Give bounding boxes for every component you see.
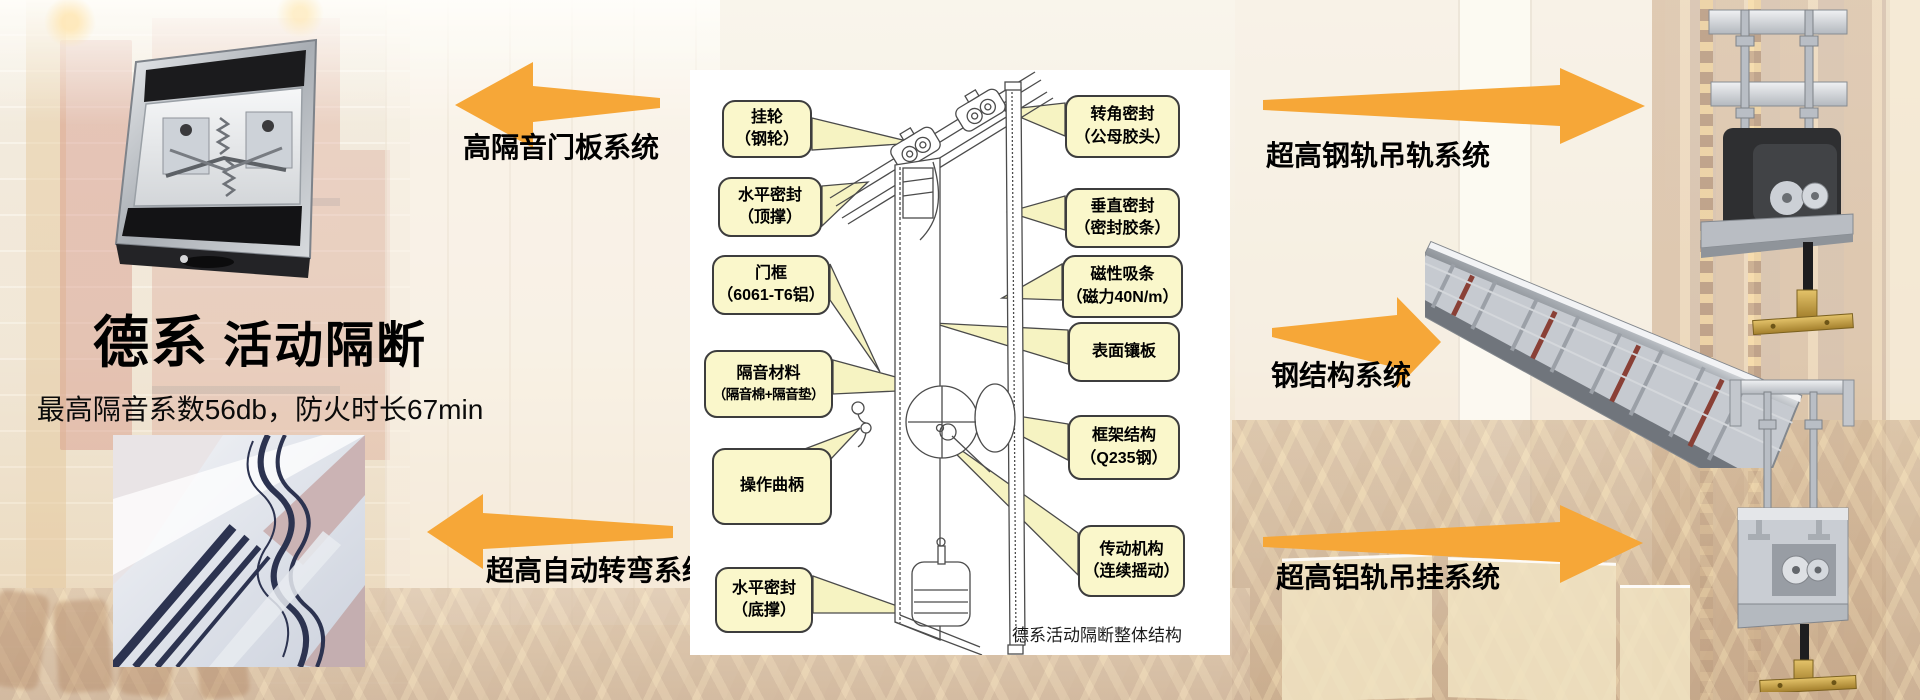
callout-horizontal-seal-top: 水平密封 （顶撑）	[718, 177, 822, 237]
callout-operating-crank: 操作曲柄	[712, 448, 832, 525]
callout-door-frame: 门框 （6061-T6铝）	[712, 255, 830, 315]
curved-track-photo	[113, 435, 365, 667]
callout-horizontal-seal-bottom: 水平密封 （底撑）	[715, 567, 813, 633]
hero-title-strong: 德系	[93, 298, 209, 379]
callout-drive-mechanism: 传动机构 （连续摇动）	[1078, 525, 1185, 597]
callout-frame-structure: 框架结构 （Q235钢）	[1068, 415, 1180, 480]
partition-illustration	[830, 72, 1053, 655]
callout-hanging-wheel: 挂轮 （钢轮）	[722, 100, 812, 158]
label-alu-rail-system: 超高铝轨吊挂系统	[1276, 556, 1500, 596]
door-panel-cross-section-photo	[88, 0, 398, 285]
callout-magnetic-strip: 磁性吸条 （磁力40N/m）	[1062, 255, 1183, 318]
callout-sound-insulation: 隔音材料 （隔音棉+隔音垫）	[704, 350, 833, 418]
steel-rail-hanger-photo	[1695, 2, 1865, 337]
hero-title-rest: 活动隔断	[223, 306, 427, 377]
label-steel-structure-system: 钢结构系统	[1271, 354, 1411, 394]
label-auto-turn-system: 超高自动转弯系统	[486, 549, 710, 589]
callout-surface-panel: 表面镶板	[1068, 322, 1180, 382]
partition-infographic: 德系 活动隔断 最高隔音系数56db，防火时长67min	[0, 0, 1920, 700]
structure-diagram-panel: 挂轮 （钢轮） 水平密封 （顶撑） 门框 （6061-T6铝） 隔音材料 （隔音…	[690, 70, 1230, 655]
hero-subtitle: 最高隔音系数56db，防火时长67min	[28, 388, 492, 428]
callout-vertical-seal: 垂直密封 （密封胶条）	[1065, 188, 1180, 248]
alu-rail-hanger-photo	[1722, 372, 1870, 692]
label-door-panel-system: 高隔音门板系统	[463, 126, 659, 166]
hero-title: 德系 活动隔断	[55, 298, 465, 378]
diagram-caption: 德系活动隔断整体结构	[1012, 621, 1202, 646]
label-steel-rail-system: 超高钢轨吊轨系统	[1266, 134, 1490, 174]
callout-corner-seal: 转角密封 （公母胶头）	[1065, 95, 1180, 158]
